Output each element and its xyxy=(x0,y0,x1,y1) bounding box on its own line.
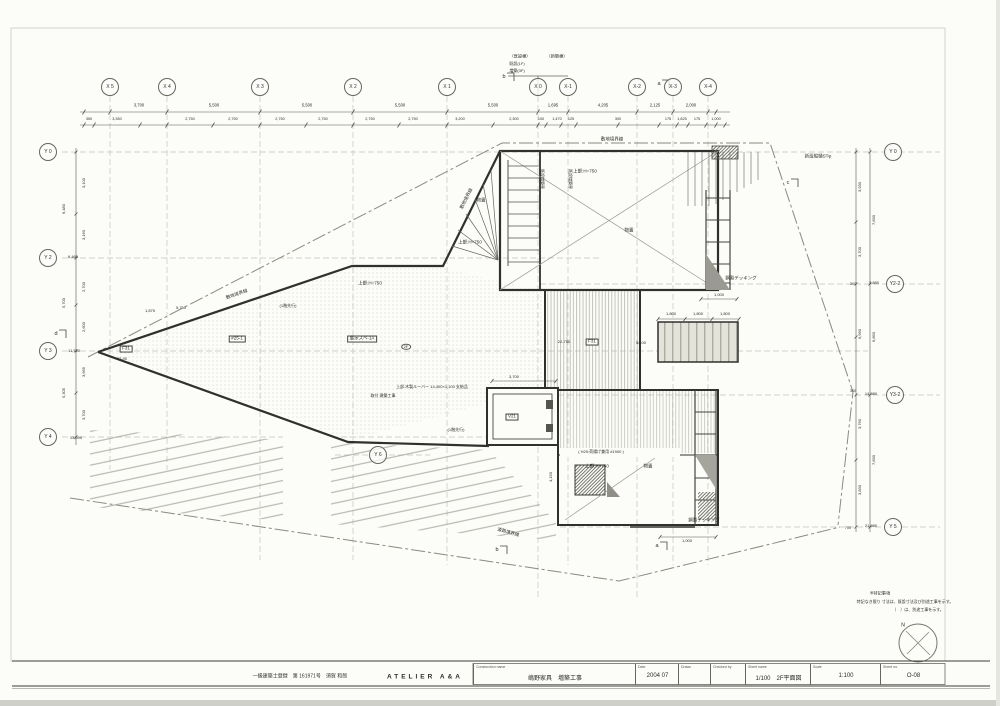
scan-edge-right xyxy=(996,0,1000,706)
title-field-label: Drawn xyxy=(681,665,691,669)
title-field: Date 2004 07 xyxy=(635,664,679,685)
scan-edge-bottom xyxy=(0,700,1000,706)
title-block: 一級建築士登録 第 161971号 須賀 和郎 ATELIER A&A Cons… xyxy=(0,0,1000,706)
title-field-label: Checked by xyxy=(713,665,731,669)
title-field-value: 2004 07 xyxy=(636,673,679,679)
title-field-value: 1:100 xyxy=(811,673,881,679)
title-field-label: Date xyxy=(638,665,645,669)
title-field-value: O-08 xyxy=(881,673,946,679)
title-field: Drawn xyxy=(678,664,711,685)
title-field: Sheet name 1/100 2F平面図 xyxy=(745,664,811,685)
title-field-value: 1/100 2F平面図 xyxy=(746,673,811,682)
title-field-label: Sheet no. xyxy=(883,665,898,669)
title-field-label: Scale xyxy=(813,665,822,669)
architect-registration: 一級建築士登録 第 161971号 須賀 和郎 xyxy=(253,674,347,680)
title-field-value: 嶋野家具 増築工事 xyxy=(474,673,636,682)
title-field: Sheet no. O-08 xyxy=(880,664,946,685)
title-field-label: Sheet name xyxy=(748,665,767,669)
title-field: Scale 1:100 xyxy=(810,664,881,685)
title-field: Checked by xyxy=(710,664,746,685)
title-field-label: Construction name xyxy=(476,665,505,669)
firm-name: ATELIER A&A xyxy=(387,673,463,680)
title-field: Construction name 嶋野家具 増築工事 xyxy=(473,664,636,685)
sheet: X 5X 4X 3X 2X 1X 0X-1X-2X-3X-4 Y 0Y 2Y 3… xyxy=(0,0,1000,706)
